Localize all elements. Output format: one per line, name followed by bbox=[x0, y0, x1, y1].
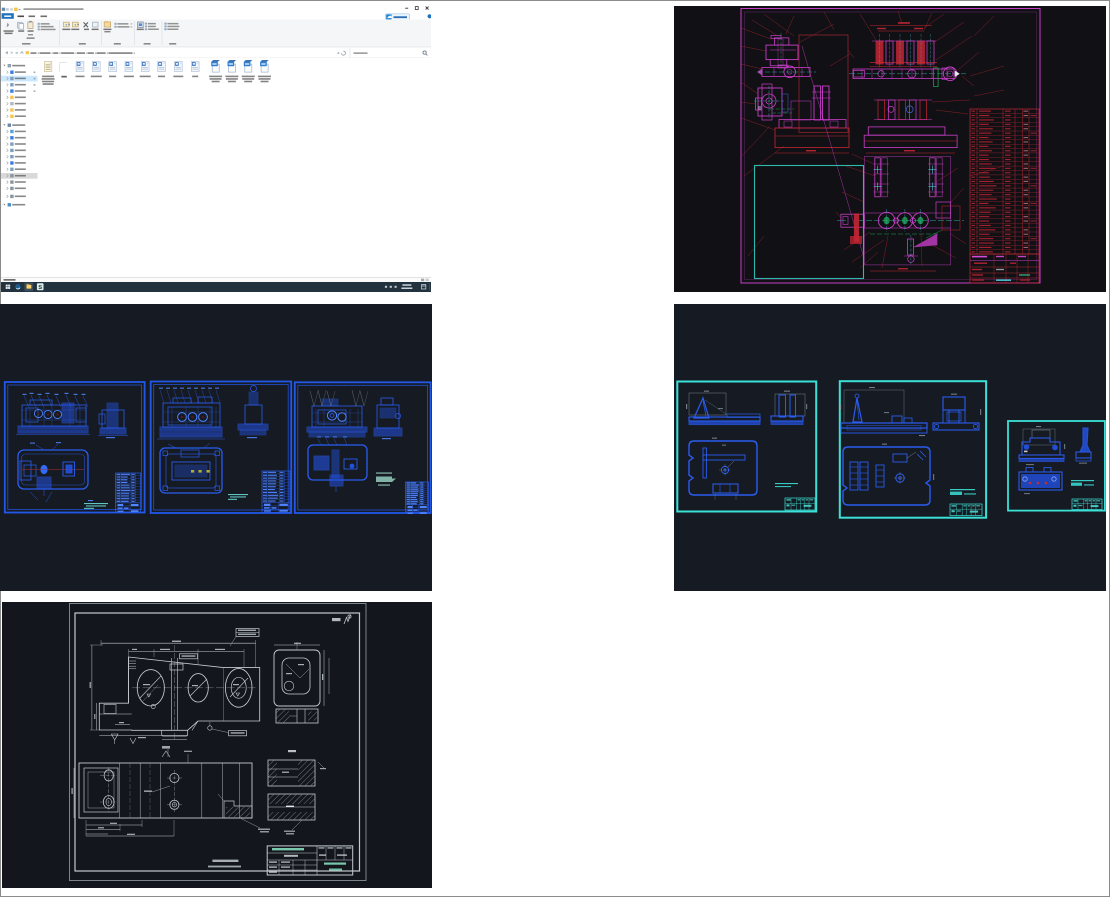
svg-text:S: S bbox=[38, 285, 42, 291]
